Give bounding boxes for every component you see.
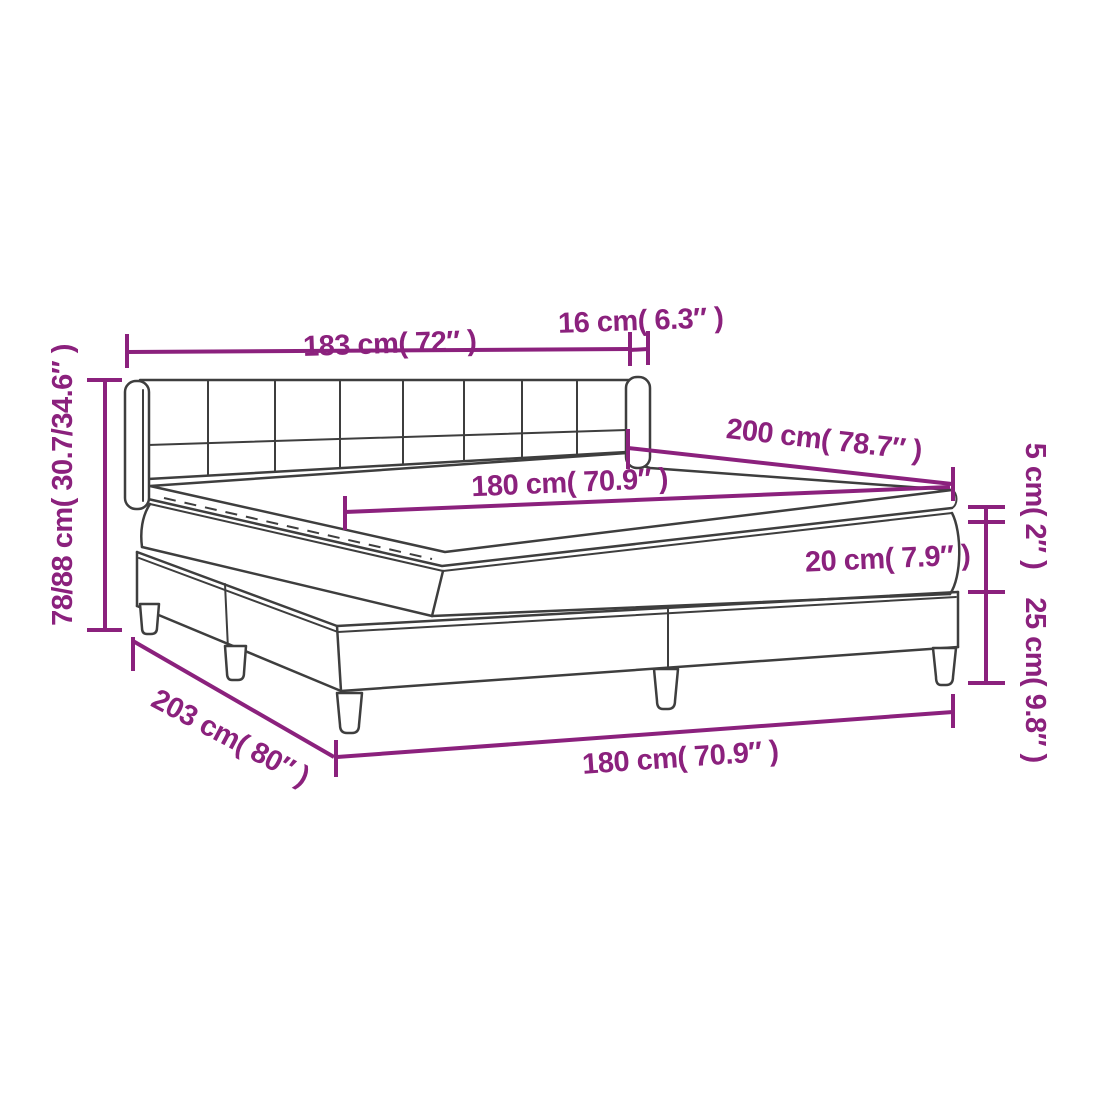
base-width-label: 180 cm( 70.9″ ) xyxy=(581,735,779,781)
dim-headboard-width: 183 cm( 72″ ) xyxy=(127,325,630,368)
base-left-seam xyxy=(225,584,228,649)
base-corner-edge xyxy=(337,626,341,691)
headboard-horizontal-seam xyxy=(148,430,627,445)
dimension-annotations: 183 cm( 72″ ) 16 cm( 6.3″ ) 200 cm( 78.7… xyxy=(47,302,1051,793)
topper-thickness-label: 5 cm( 2″ ) xyxy=(1019,443,1051,570)
mattress-thickness-label: 20 cm( 7.9″ ) xyxy=(804,539,971,578)
base-front-bottom-edge xyxy=(341,647,958,691)
dim-total-height: 78/88 cm( 30.7/34.6″ ) xyxy=(47,344,122,630)
bed-diagram-svg: 183 cm( 72″ ) 16 cm( 6.3″ ) 200 cm( 78.7… xyxy=(0,0,1100,1100)
headboard-left-wing xyxy=(125,381,149,509)
base-height-label: 25 cm( 9.8″ ) xyxy=(1019,597,1051,762)
headboard-width-label: 183 cm( 72″ ) xyxy=(302,325,476,363)
leg xyxy=(140,604,159,634)
leg xyxy=(337,693,362,733)
mattress-front-left-edge xyxy=(432,571,443,616)
bed-length-label: 200 cm( 78.7″ ) xyxy=(725,413,924,467)
bed-dimension-diagram: 183 cm( 72″ ) 16 cm( 6.3″ ) 200 cm( 78.7… xyxy=(0,0,1100,1100)
mattress-left-bottom-edge xyxy=(142,547,432,616)
dim-wing-thickness: 16 cm( 6.3″ ) xyxy=(557,302,723,365)
frame-length-label: 203 cm( 80″ ) xyxy=(146,683,314,793)
total-height-label: 78/88 cm( 30.7/34.6″ ) xyxy=(47,344,79,626)
wing-thickness-label: 16 cm( 6.3″ ) xyxy=(557,302,723,340)
dim-right-heights: 5 cm( 2″ ) 25 cm( 9.8″ ) xyxy=(968,443,1051,763)
mattress-left-cap xyxy=(141,504,150,547)
leg xyxy=(225,646,246,680)
leg xyxy=(933,648,956,685)
dim-base-width: 180 cm( 70.9″ ) xyxy=(336,694,953,781)
leg xyxy=(654,669,678,709)
